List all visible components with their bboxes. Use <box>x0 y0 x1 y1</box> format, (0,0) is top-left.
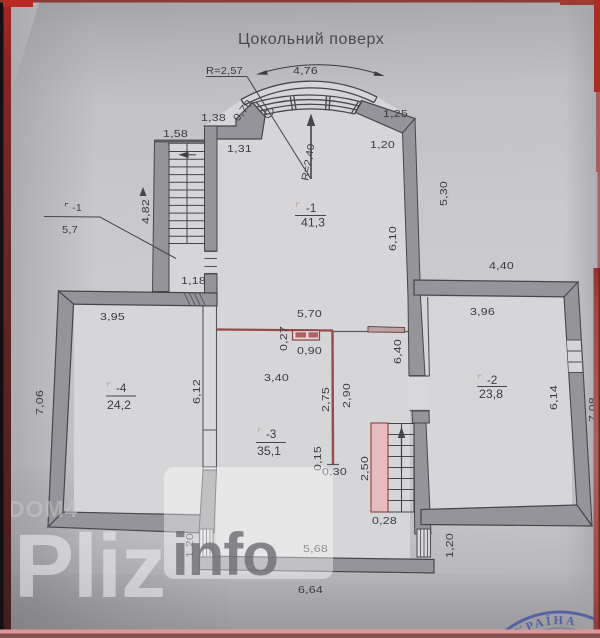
svg-text:5,30: 5,30 <box>438 181 450 206</box>
svg-text:5,70: 5,70 <box>297 308 322 320</box>
svg-text:41,3: 41,3 <box>301 218 325 230</box>
svg-text:5,7: 5,7 <box>62 224 78 236</box>
svg-text:info: info <box>172 521 278 588</box>
svg-text:⌜: ⌜ <box>477 374 482 386</box>
svg-text:6,10: 6,10 <box>387 226 399 251</box>
svg-text:-2: -2 <box>487 375 497 387</box>
svg-text:3,40: 3,40 <box>264 372 289 384</box>
svg-text:Pliz: Pliz <box>14 517 165 617</box>
svg-text:R=2,57: R=2,57 <box>206 65 243 77</box>
svg-text:1,31: 1,31 <box>227 143 252 155</box>
svg-text:⌜: ⌜ <box>106 382 111 394</box>
svg-text:2,50: 2,50 <box>359 456 371 481</box>
svg-text:-4: -4 <box>116 383 127 395</box>
svg-text:1,20: 1,20 <box>444 533 456 558</box>
svg-text:4,82: 4,82 <box>140 199 152 224</box>
svg-text:0,90: 0,90 <box>297 345 322 357</box>
svg-text:-3: -3 <box>266 429 276 441</box>
svg-text:24,2: 24,2 <box>107 400 131 412</box>
svg-text:0,28: 0,28 <box>372 515 397 527</box>
svg-text:6,40: 6,40 <box>392 339 404 364</box>
svg-text:1,20: 1,20 <box>370 139 395 151</box>
svg-text:1,18: 1,18 <box>181 275 206 287</box>
svg-text:1,58: 1,58 <box>163 128 188 140</box>
svg-text:4,40: 4,40 <box>489 260 514 272</box>
svg-text:0,27: 0,27 <box>278 326 290 351</box>
svg-text:6,14: 6,14 <box>548 385 560 410</box>
svg-text:4,76: 4,76 <box>293 65 318 77</box>
svg-text:3,96: 3,96 <box>470 306 495 318</box>
svg-text:⌜ -1: ⌜ -1 <box>64 202 82 214</box>
svg-text:⌜: ⌜ <box>295 202 300 214</box>
svg-text:⌜: ⌜ <box>257 428 262 440</box>
svg-text:3,95: 3,95 <box>100 311 125 323</box>
svg-text:2,90: 2,90 <box>341 383 353 408</box>
svg-text:1,38: 1,38 <box>201 112 226 124</box>
svg-text:2,75: 2,75 <box>320 387 332 412</box>
svg-text:6,12: 6,12 <box>191 379 203 404</box>
svg-text:23,8: 23,8 <box>479 389 503 401</box>
svg-text:7,06: 7,06 <box>34 390 46 415</box>
svg-text:Цокольний поверх: Цокольний поверх <box>238 31 384 48</box>
svg-text:1,25: 1,25 <box>383 108 408 120</box>
svg-text:6,64: 6,64 <box>298 584 323 596</box>
svg-text:35,1: 35,1 <box>257 446 281 458</box>
svg-text:-1: -1 <box>306 203 316 215</box>
